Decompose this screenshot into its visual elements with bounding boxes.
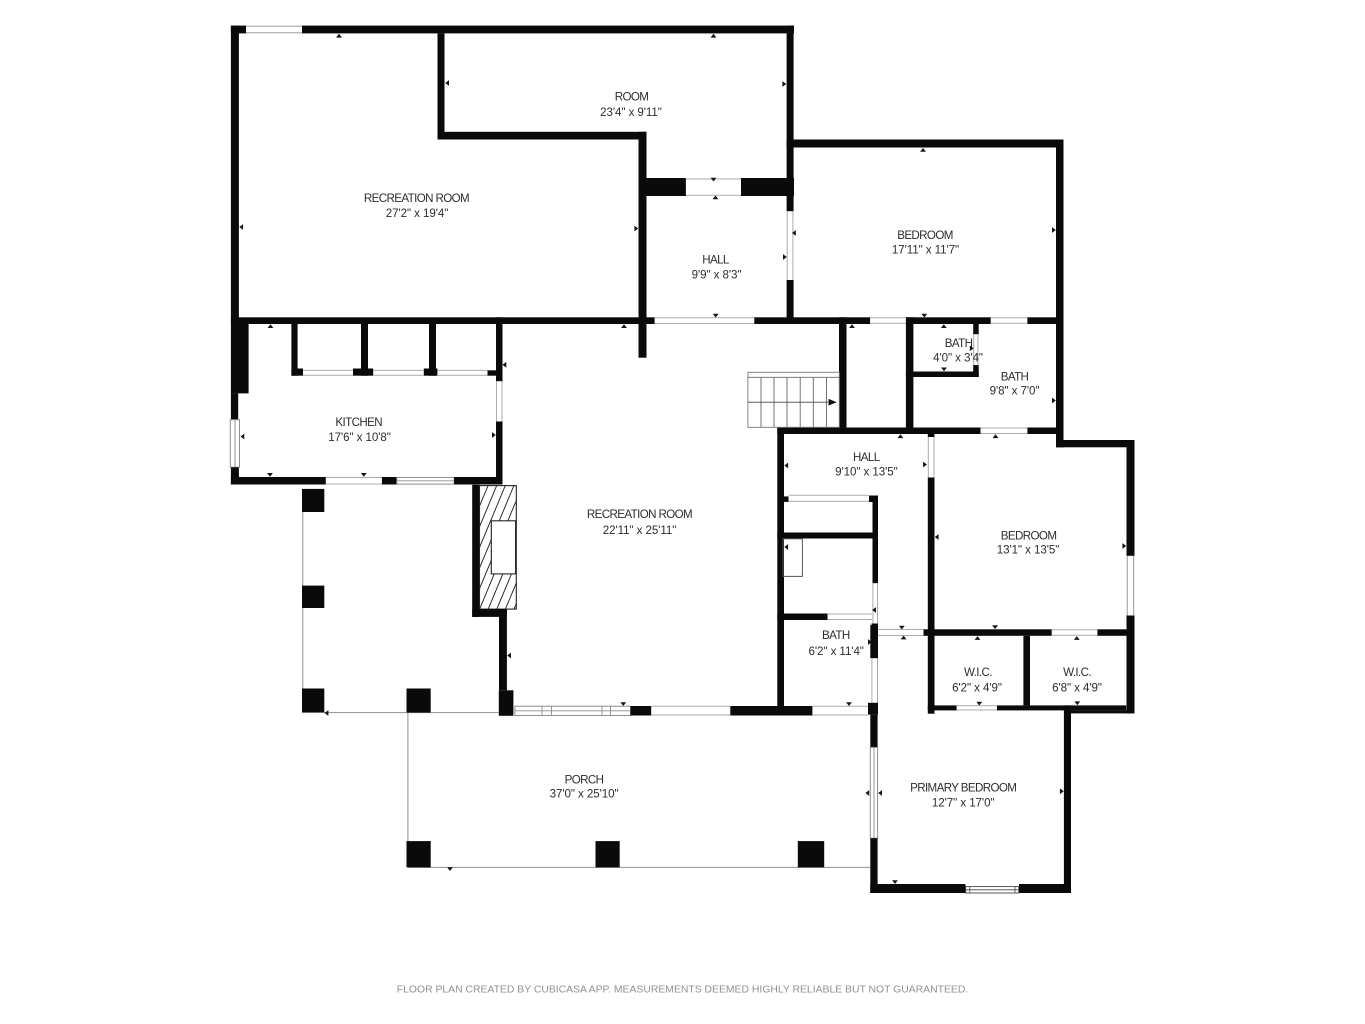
svg-text:17'6" x 10'8": 17'6" x 10'8" xyxy=(328,431,391,444)
svg-text:12'7" x 17'0": 12'7" x 17'0" xyxy=(932,796,995,809)
svg-text:HALL: HALL xyxy=(853,451,881,464)
svg-text:22'11" x 25'11": 22'11" x 25'11" xyxy=(603,524,677,537)
svg-text:9'9" x 8'3": 9'9" x 8'3" xyxy=(692,269,742,282)
svg-text:37'0" x 25'10": 37'0" x 25'10" xyxy=(550,787,619,800)
svg-text:BATH: BATH xyxy=(822,629,850,642)
svg-text:W.I.C.: W.I.C. xyxy=(964,666,992,679)
svg-text:BEDROOM: BEDROOM xyxy=(897,229,953,242)
svg-text:6'2" x 4'9": 6'2" x 4'9" xyxy=(952,682,1002,695)
svg-text:27'2" x 19'4": 27'2" x 19'4" xyxy=(386,207,449,220)
svg-text:9'8" x 7'0": 9'8" x 7'0" xyxy=(990,385,1040,398)
svg-text:4'0" x 3'4": 4'0" x 3'4" xyxy=(933,352,983,365)
svg-text:FLOOR PLAN CREATED BY CUBICASA: FLOOR PLAN CREATED BY CUBICASA APP. MEAS… xyxy=(397,985,968,996)
svg-text:13'1" x 13'5": 13'1" x 13'5" xyxy=(997,544,1060,557)
svg-text:W.I.C.: W.I.C. xyxy=(1063,666,1091,679)
svg-text:KITCHEN: KITCHEN xyxy=(335,416,382,429)
svg-text:9'10" x 13'5": 9'10" x 13'5" xyxy=(835,466,898,479)
svg-text:17'11" x 11'7": 17'11" x 11'7" xyxy=(892,244,959,257)
svg-text:ROOM: ROOM xyxy=(615,91,649,104)
svg-text:23'4" x 9'11": 23'4" x 9'11" xyxy=(600,106,662,119)
svg-text:BATH: BATH xyxy=(1001,371,1029,384)
svg-text:RECREATION ROOM: RECREATION ROOM xyxy=(587,508,692,521)
svg-text:PRIMARY BEDROOM: PRIMARY BEDROOM xyxy=(910,782,1016,795)
svg-text:HALL: HALL xyxy=(702,254,730,267)
svg-text:BATH: BATH xyxy=(945,337,973,350)
svg-text:RECREATION ROOM: RECREATION ROOM xyxy=(364,192,469,205)
svg-text:6'2" x 11'4": 6'2" x 11'4" xyxy=(809,645,864,658)
svg-text:6'8" x 4'9": 6'8" x 4'9" xyxy=(1052,682,1102,695)
svg-text:PORCH: PORCH xyxy=(565,773,604,786)
svg-text:BEDROOM: BEDROOM xyxy=(1001,530,1057,543)
